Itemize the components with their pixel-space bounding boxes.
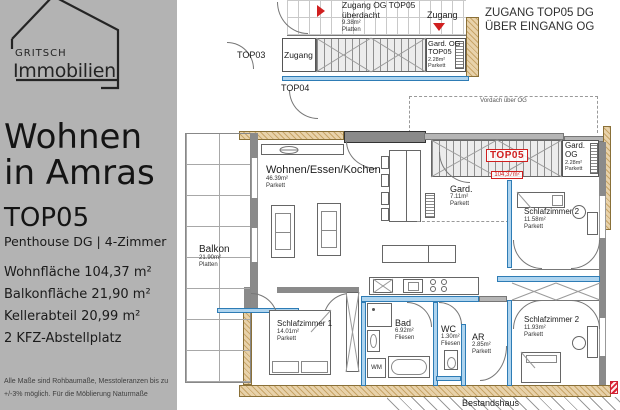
window-left-2 <box>251 228 258 262</box>
door-arc-sz2-oben-r <box>571 240 600 269</box>
room-label-balkon: Balkon 21.90m² Platten <box>199 244 230 269</box>
door-arc-sz2-oben-l <box>513 240 542 269</box>
room-label-schlafzimmer2-unten: Schlafzimmer 2 11.93m² Parkett <box>524 316 579 338</box>
entry-door-arc <box>277 2 308 34</box>
window-right-2 <box>599 318 606 356</box>
room-label-schlafzimmer1: Schlafzimmer 1 14.01m² Parkett <box>277 320 332 342</box>
fact-kellerabteil: Kellerabteil 20,99 m² <box>4 309 140 324</box>
dining-chair-4 <box>381 208 389 221</box>
room-label-gard: Gard. 7.11m² Parkett <box>450 184 473 208</box>
bestandshaus-label: Bestandshaus <box>462 398 519 408</box>
vordach-label: Vordach über OG <box>410 98 597 104</box>
og-staircase <box>316 38 426 72</box>
floorplan-page: GRITSCH Immobilien Wohnen in Amras TOP05… <box>0 0 620 410</box>
page-title-line1: Wohnen <box>4 120 142 155</box>
page-title-line2: in Amras <box>4 156 155 191</box>
shower <box>367 303 392 327</box>
room-label-schlafzimmer2-oben: Schlafzimmer 2 11.58m² Parkett <box>524 208 579 230</box>
disclaimer-line1: Alle Maße sind Rohbaumaße, Messtoleranze… <box>4 378 168 385</box>
wall-blue-band <box>497 276 600 282</box>
room-label-gard-og: Gard. OG 2.28m² Parkett <box>565 142 585 172</box>
room-label-wc: WC 1.30m² Fliesen <box>441 324 460 348</box>
gard-dashed-boundary <box>417 221 509 222</box>
bathtub <box>388 356 430 378</box>
toilet <box>444 350 458 370</box>
window-right-1 <box>599 196 606 238</box>
room-label-wohnen: Wohnen/Essen/Kochen 46.39m² Parkett <box>266 164 381 190</box>
wall-blue-sz2-unten <box>507 300 512 386</box>
wall-blue-wc-bottom <box>436 376 461 381</box>
desk-sz2-oben <box>587 212 598 235</box>
wall-blue-sz2-oben <box>507 180 512 268</box>
dining-chair-2 <box>381 174 389 187</box>
dining-table <box>389 150 421 222</box>
dining-chair-1 <box>381 156 389 169</box>
kitchen-oven <box>403 279 423 293</box>
gard-og-wardrobe <box>590 143 598 174</box>
gritsch-logo: GRITSCH Immobilien <box>6 0 126 96</box>
window-left-1 <box>251 158 258 198</box>
wall-blue-bath-top <box>361 296 479 302</box>
top05-marker-area: 104,37m² <box>491 171 522 179</box>
wall-entry-right-tan <box>466 17 479 77</box>
entry-arrow2-icon <box>433 23 445 31</box>
label-gard-og-top05: Gard. OG TOP05 2.28m² Parkett <box>428 40 461 69</box>
landing-door-arc <box>439 152 470 183</box>
plan-heading-line1: ZUGANG TOP05 DG <box>485 6 594 20</box>
band-line-bottom <box>511 300 599 301</box>
wall-entry-blue <box>282 76 469 81</box>
wm-label: WM <box>368 365 385 371</box>
floorplan: Vordach über OG <box>177 0 620 410</box>
wall-blue-wc-left <box>433 302 438 386</box>
wall-bottom-tan <box>239 385 611 397</box>
unit-subtitle: Penthouse DG | 4-Zimmer <box>4 234 166 249</box>
band-line-top <box>511 269 599 270</box>
sideboard <box>261 144 344 155</box>
label-top03: TOP03 <box>237 50 265 60</box>
disclaimer-line2: +/-3% möglich. Für die Möblierung Naturm… <box>4 391 148 398</box>
room-label-ar: AR 2.85m² Parkett <box>472 332 491 356</box>
wall-blue-wc-right <box>461 324 466 386</box>
kitchen-sink <box>373 279 393 293</box>
plan-heading-line2: ÜBER EINGANG OG <box>485 20 594 34</box>
sidebar: GRITSCH Immobilien Wohnen in Amras TOP05… <box>0 0 177 410</box>
plan-heading: ZUGANG TOP05 DG ÜBER EINGANG OG <box>485 6 594 34</box>
kitchen-hob <box>429 278 453 294</box>
sz1-window-panel <box>346 292 359 372</box>
red-marker-patch <box>610 381 618 394</box>
dining-chair-3 <box>381 192 389 205</box>
wc-door-arc <box>439 302 462 325</box>
label-vestibule: Zugang <box>284 50 313 60</box>
washing-machine: WM <box>367 358 386 378</box>
label-zugang-og: Zugang OG TOP05 überdacht 9.38m² Platten <box>342 1 415 33</box>
vordach-outline: Vordach über OG <box>409 96 598 133</box>
wall-landing-top <box>424 133 564 140</box>
desk-sz2-unten <box>587 326 598 358</box>
unit-label: TOP05 <box>4 203 89 233</box>
lounge-chair-2 <box>317 203 341 256</box>
washbasin <box>367 330 380 352</box>
entry-arrow-icon <box>317 5 325 17</box>
gard-wardrobe <box>425 193 435 218</box>
top05-marker-label: TOP05 <box>486 149 528 162</box>
top04-door-arc <box>289 90 318 119</box>
kitchen-island <box>382 245 456 263</box>
fact-kfz: 2 KFZ-Abstellplatz <box>4 331 121 346</box>
bed-sz2-oben <box>517 192 565 208</box>
bed-sz2-unten <box>521 352 561 383</box>
label-zugang-top: Zugang <box>427 10 458 20</box>
logo-word-immobilien: Immobilien <box>13 60 116 82</box>
wall-blue-bad-left <box>361 302 366 386</box>
label-top04: TOP04 <box>281 83 309 93</box>
lounge-chair-1 <box>271 205 295 258</box>
fact-wohnflaeche: Wohnfläche 104,37 m² <box>4 265 152 280</box>
top05-marker: TOP05 104,37m² <box>480 145 534 181</box>
fact-balkonflaeche: Balkonfläche 21,90 m² <box>4 287 151 302</box>
logo-word-gritsch: GRITSCH <box>15 48 67 59</box>
room-label-bad: Bad 6.92m² Fliesen <box>395 318 414 342</box>
wall-ar-top <box>479 296 507 302</box>
